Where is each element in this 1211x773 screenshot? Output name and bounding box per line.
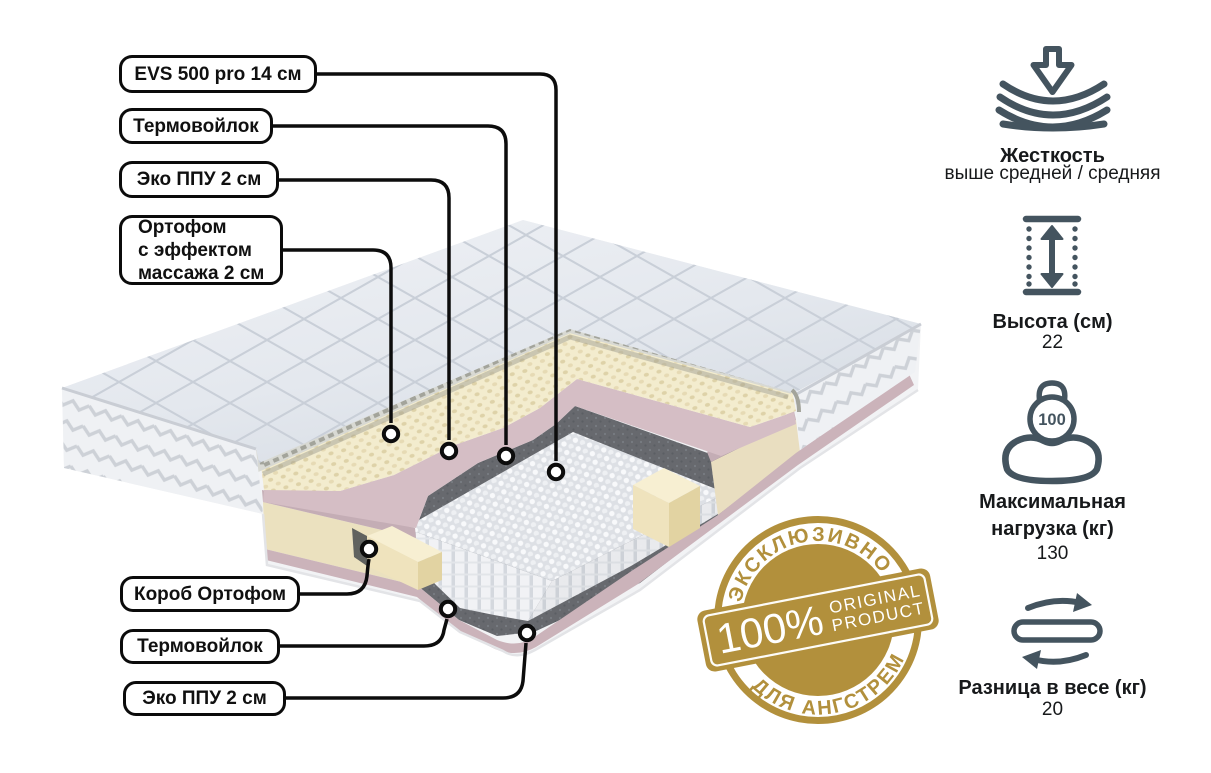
- svg-text:100: 100: [1038, 411, 1066, 429]
